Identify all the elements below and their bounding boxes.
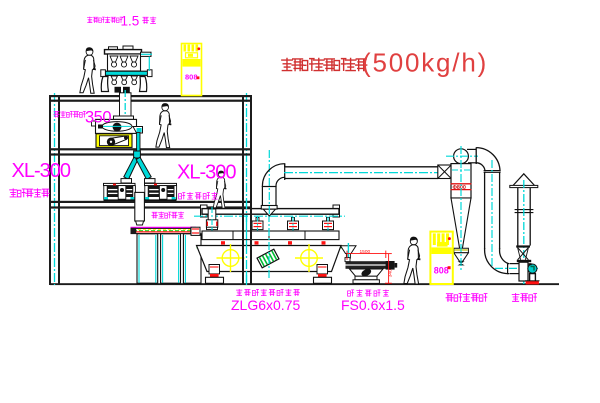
svg-text:340: 340 (387, 269, 393, 277)
svg-text:(500kg/h): (500kg/h) (362, 48, 488, 78)
svg-text:FS0.6x1.5: FS0.6x1.5 (341, 297, 405, 313)
svg-text:350: 350 (85, 109, 111, 127)
svg-text:808: 808 (434, 266, 449, 276)
svg-text:1.5: 1.5 (121, 14, 140, 29)
svg-text:1500: 1500 (360, 249, 371, 255)
svg-text:808: 808 (185, 73, 198, 82)
svg-text:Φ800: Φ800 (453, 185, 466, 191)
svg-text:XL-300: XL-300 (12, 160, 71, 182)
svg-text:XL-300: XL-300 (177, 162, 236, 184)
svg-text:ZLG6x0.75: ZLG6x0.75 (231, 297, 300, 313)
